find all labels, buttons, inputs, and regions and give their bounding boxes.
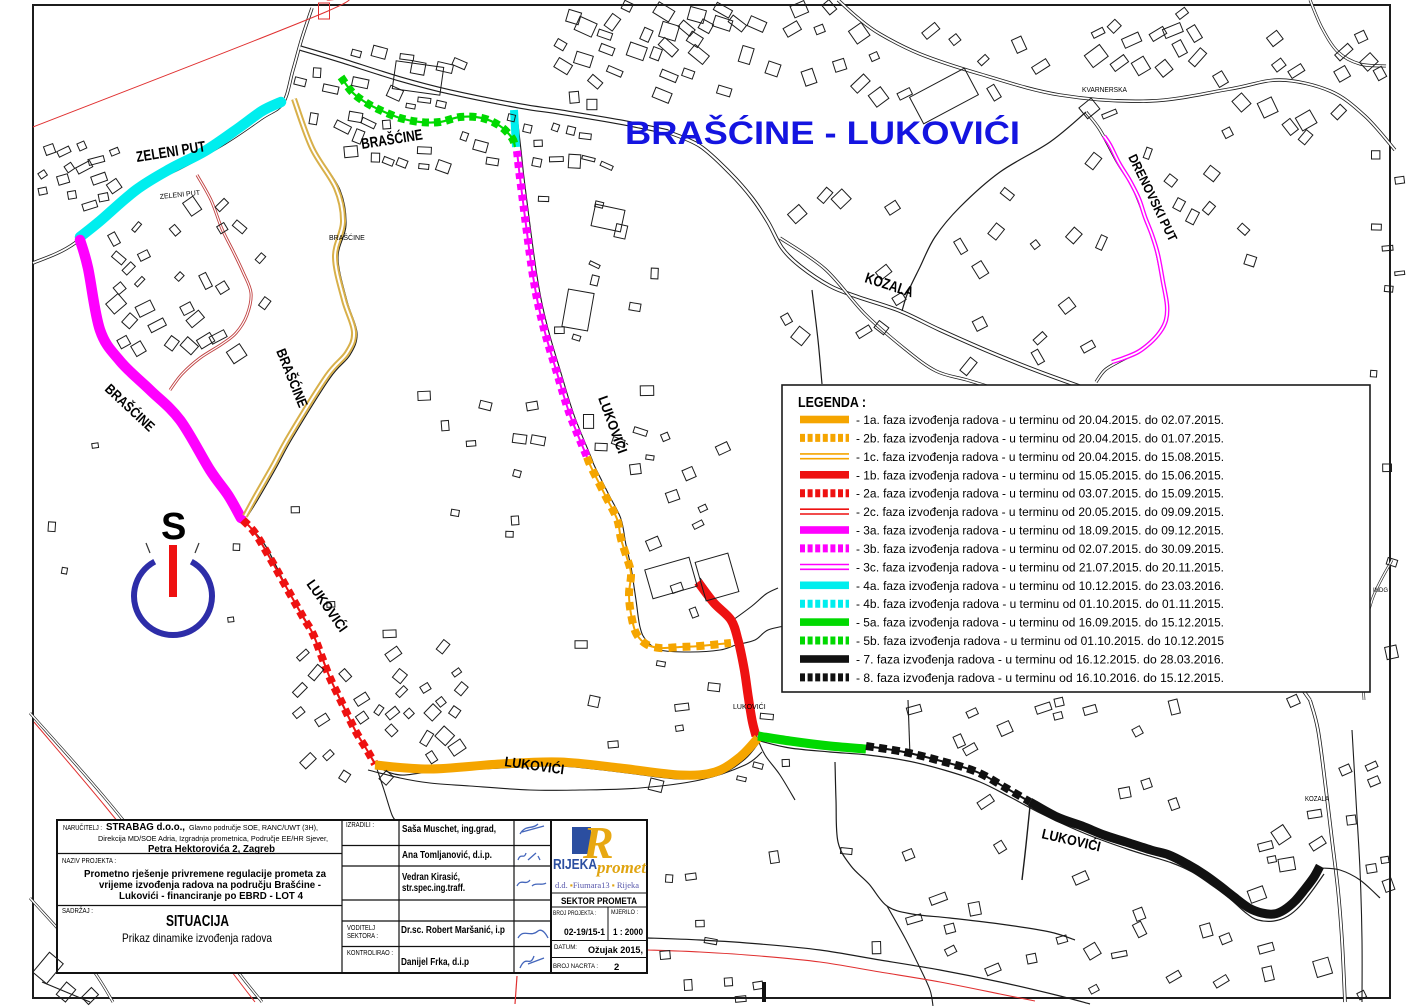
svg-text:IZRADILI :: IZRADILI : <box>346 822 374 829</box>
svg-text:str.spec.ing.traff.: str.spec.ing.traff. <box>402 883 465 894</box>
svg-text:LUKOVIĆI: LUKOVIĆI <box>733 702 766 711</box>
svg-text:BROJ PROJEKTA :: BROJ PROJEKTA : <box>553 910 596 917</box>
svg-text:02-19/15-1: 02-19/15-1 <box>564 927 605 937</box>
svg-text:d.d. ▪Fiumara13 ▪ Rijeka: d.d. ▪Fiumara13 ▪ Rijeka <box>555 880 639 890</box>
svg-text:Petra Hektorovića 2, Zagreb: Petra Hektorovića 2, Zagreb <box>148 844 275 855</box>
svg-text:KOZALA: KOZALA <box>1305 796 1329 803</box>
svg-text:Saša Muschet, ing.grad,: Saša Muschet, ing.grad, <box>402 824 496 835</box>
svg-text:BRAŠĆINE: BRAŠĆINE <box>329 233 365 242</box>
svg-text:SADRŽAJ :: SADRŽAJ : <box>62 906 93 915</box>
svg-text:SEKTORA :: SEKTORA : <box>347 933 378 940</box>
svg-text:Ana Tomljanović, d.i.p.: Ana Tomljanović, d.i.p. <box>402 850 492 861</box>
svg-text:promet: promet <box>595 858 647 877</box>
svg-text:Direkcija MD/SOE Adria, Izgrad: Direkcija MD/SOE Adria, Izgradnja promet… <box>98 834 328 843</box>
svg-text:MJERILO :: MJERILO : <box>611 909 638 916</box>
svg-text:BROJ NACRTA :: BROJ NACRTA : <box>553 963 598 970</box>
svg-text:- 5b. faza izvođenja radova -: - 5b. faza izvođenja radova - u terminu … <box>856 634 1224 648</box>
svg-text:S: S <box>161 506 186 548</box>
svg-text:SEKTOR PROMETA: SEKTOR PROMETA <box>561 896 637 907</box>
svg-text:KONTROLIRAO :: KONTROLIRAO : <box>347 950 393 957</box>
svg-text:Danijel Frka, d.i.p: Danijel Frka, d.i.p <box>401 957 469 968</box>
svg-text:SITUACIJA: SITUACIJA <box>166 913 229 930</box>
svg-text:Glavno područje SOE, RANC/UWT: Glavno područje SOE, RANC/UWT (3H), <box>189 823 318 832</box>
svg-text:- 2c. faza izvođenja radova -: - 2c. faza izvođenja radova - u terminu … <box>856 505 1224 519</box>
svg-text:Prikaz dinamike izvođenja rado: Prikaz dinamike izvođenja radova <box>122 931 272 945</box>
svg-text:Dr.sc. Robert Maršanić, i.p: Dr.sc. Robert Maršanić, i.p <box>401 925 505 936</box>
svg-text:RIJEKA: RIJEKA <box>553 857 597 873</box>
svg-text:- 3a. faza izvođenja radova -: - 3a. faza izvođenja radova - u terminu … <box>856 524 1224 538</box>
svg-text:- 8. faza izvođenja radova - u: - 8. faza izvođenja radova - u terminu o… <box>856 671 1224 685</box>
svg-text:STRABAG d.o.o.,: STRABAG d.o.o., <box>106 822 185 833</box>
svg-text:- 3c. faza izvođenja radova -: - 3c. faza izvođenja radova - u terminu … <box>856 560 1224 574</box>
svg-text:- 3b. faza izvođenja radova -: - 3b. faza izvođenja radova - u terminu … <box>856 542 1224 556</box>
svg-text:2: 2 <box>614 962 619 973</box>
svg-text:- 1a. faza izvođenja radova -: - 1a. faza izvođenja radova - u terminu … <box>856 413 1224 427</box>
svg-text:- 1b. faza izvođenja radova -: - 1b. faza izvođenja radova - u terminu … <box>856 468 1224 482</box>
svg-text:BRAŠĆINE - LUKOVIĆI: BRAŠĆINE - LUKOVIĆI <box>625 113 1020 151</box>
svg-text:- 7. faza izvođenja radova - u: - 7. faza izvođenja radova - u terminu o… <box>856 653 1224 667</box>
svg-text:- 1c. faza izvođenja radova -: - 1c. faza izvođenja radova - u terminu … <box>856 450 1224 464</box>
svg-text:NARUČITELJ :: NARUČITELJ : <box>63 823 102 832</box>
svg-text:DATUM:: DATUM: <box>554 944 577 951</box>
svg-text:LEGENDA :: LEGENDA : <box>798 394 866 411</box>
svg-text:- 4a. faza izvođenja radova -: - 4a. faza izvođenja radova - u terminu … <box>856 579 1224 593</box>
svg-text:NAZIV PROJEKTA :: NAZIV PROJEKTA : <box>62 858 116 865</box>
svg-text:- 2a. faza izvođenja radova -: - 2a. faza izvođenja radova - u terminu … <box>856 487 1224 501</box>
svg-text:- 4b. faza izvođenja radova -: - 4b. faza izvođenja radova - u terminu … <box>856 597 1224 611</box>
svg-text:Vedran Kirasić,: Vedran Kirasić, <box>402 872 460 883</box>
svg-text:1 : 2000: 1 : 2000 <box>613 927 643 937</box>
svg-text:Lukovići - financiranje po EBR: Lukovići - financiranje po EBRD - LOT 4 <box>119 890 303 902</box>
svg-text:KVARNERSKA: KVARNERSKA <box>1082 87 1127 94</box>
svg-text:INDG: INDG <box>1373 588 1388 594</box>
svg-text:- 2b. faza izvođenja radova -: - 2b. faza izvođenja radova - u terminu … <box>856 431 1224 445</box>
svg-text:- 5a. faza izvođenja radova -: - 5a. faza izvođenja radova - u terminu … <box>856 616 1224 630</box>
svg-text:Ožujak 2015,: Ožujak 2015, <box>588 945 643 956</box>
svg-text:VODITELJ: VODITELJ <box>347 925 375 932</box>
